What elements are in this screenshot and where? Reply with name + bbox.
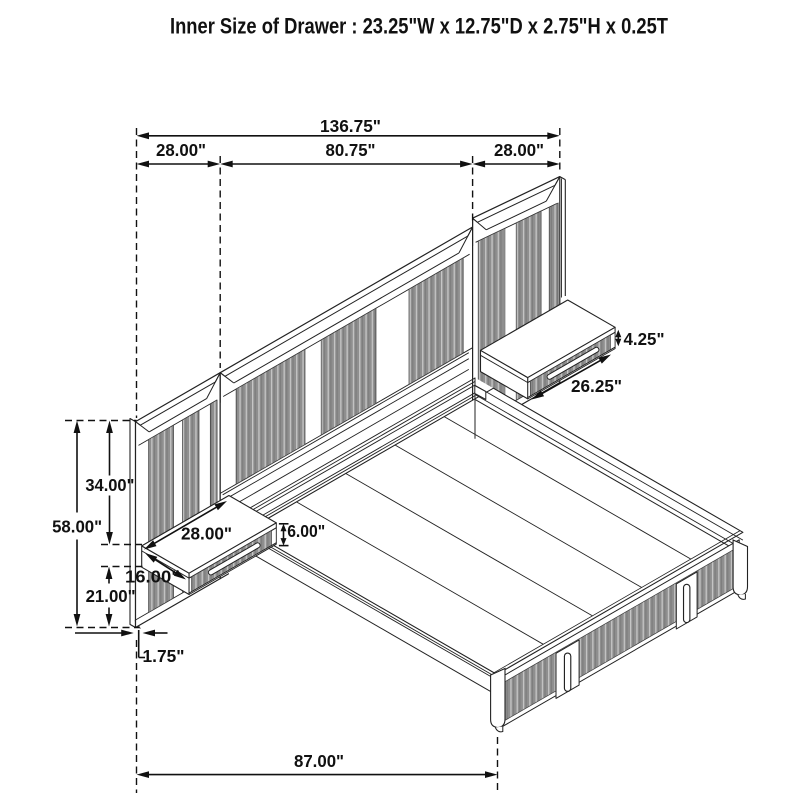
svg-text:1.75": 1.75" — [143, 646, 185, 666]
svg-text:21.00": 21.00" — [86, 586, 136, 606]
svg-text:6.00": 6.00" — [287, 521, 325, 541]
svg-text:16.00": 16.00" — [125, 567, 180, 587]
svg-text:28.00": 28.00" — [181, 524, 232, 544]
svg-text:28.00": 28.00" — [156, 140, 206, 160]
svg-text:87.00": 87.00" — [294, 751, 344, 771]
svg-text:58.00": 58.00" — [52, 517, 102, 537]
svg-text:34.00": 34.00" — [85, 475, 134, 495]
svg-text:4.25": 4.25" — [624, 329, 665, 349]
svg-text:Inner Size of Drawer : 23.25"W: Inner Size of Drawer : 23.25"W x 12.75"D… — [170, 14, 668, 39]
svg-text:26.25": 26.25" — [571, 376, 622, 396]
svg-text:80.75": 80.75" — [326, 140, 376, 160]
svg-text:136.75": 136.75" — [320, 116, 381, 136]
svg-text:28.00": 28.00" — [494, 140, 544, 160]
